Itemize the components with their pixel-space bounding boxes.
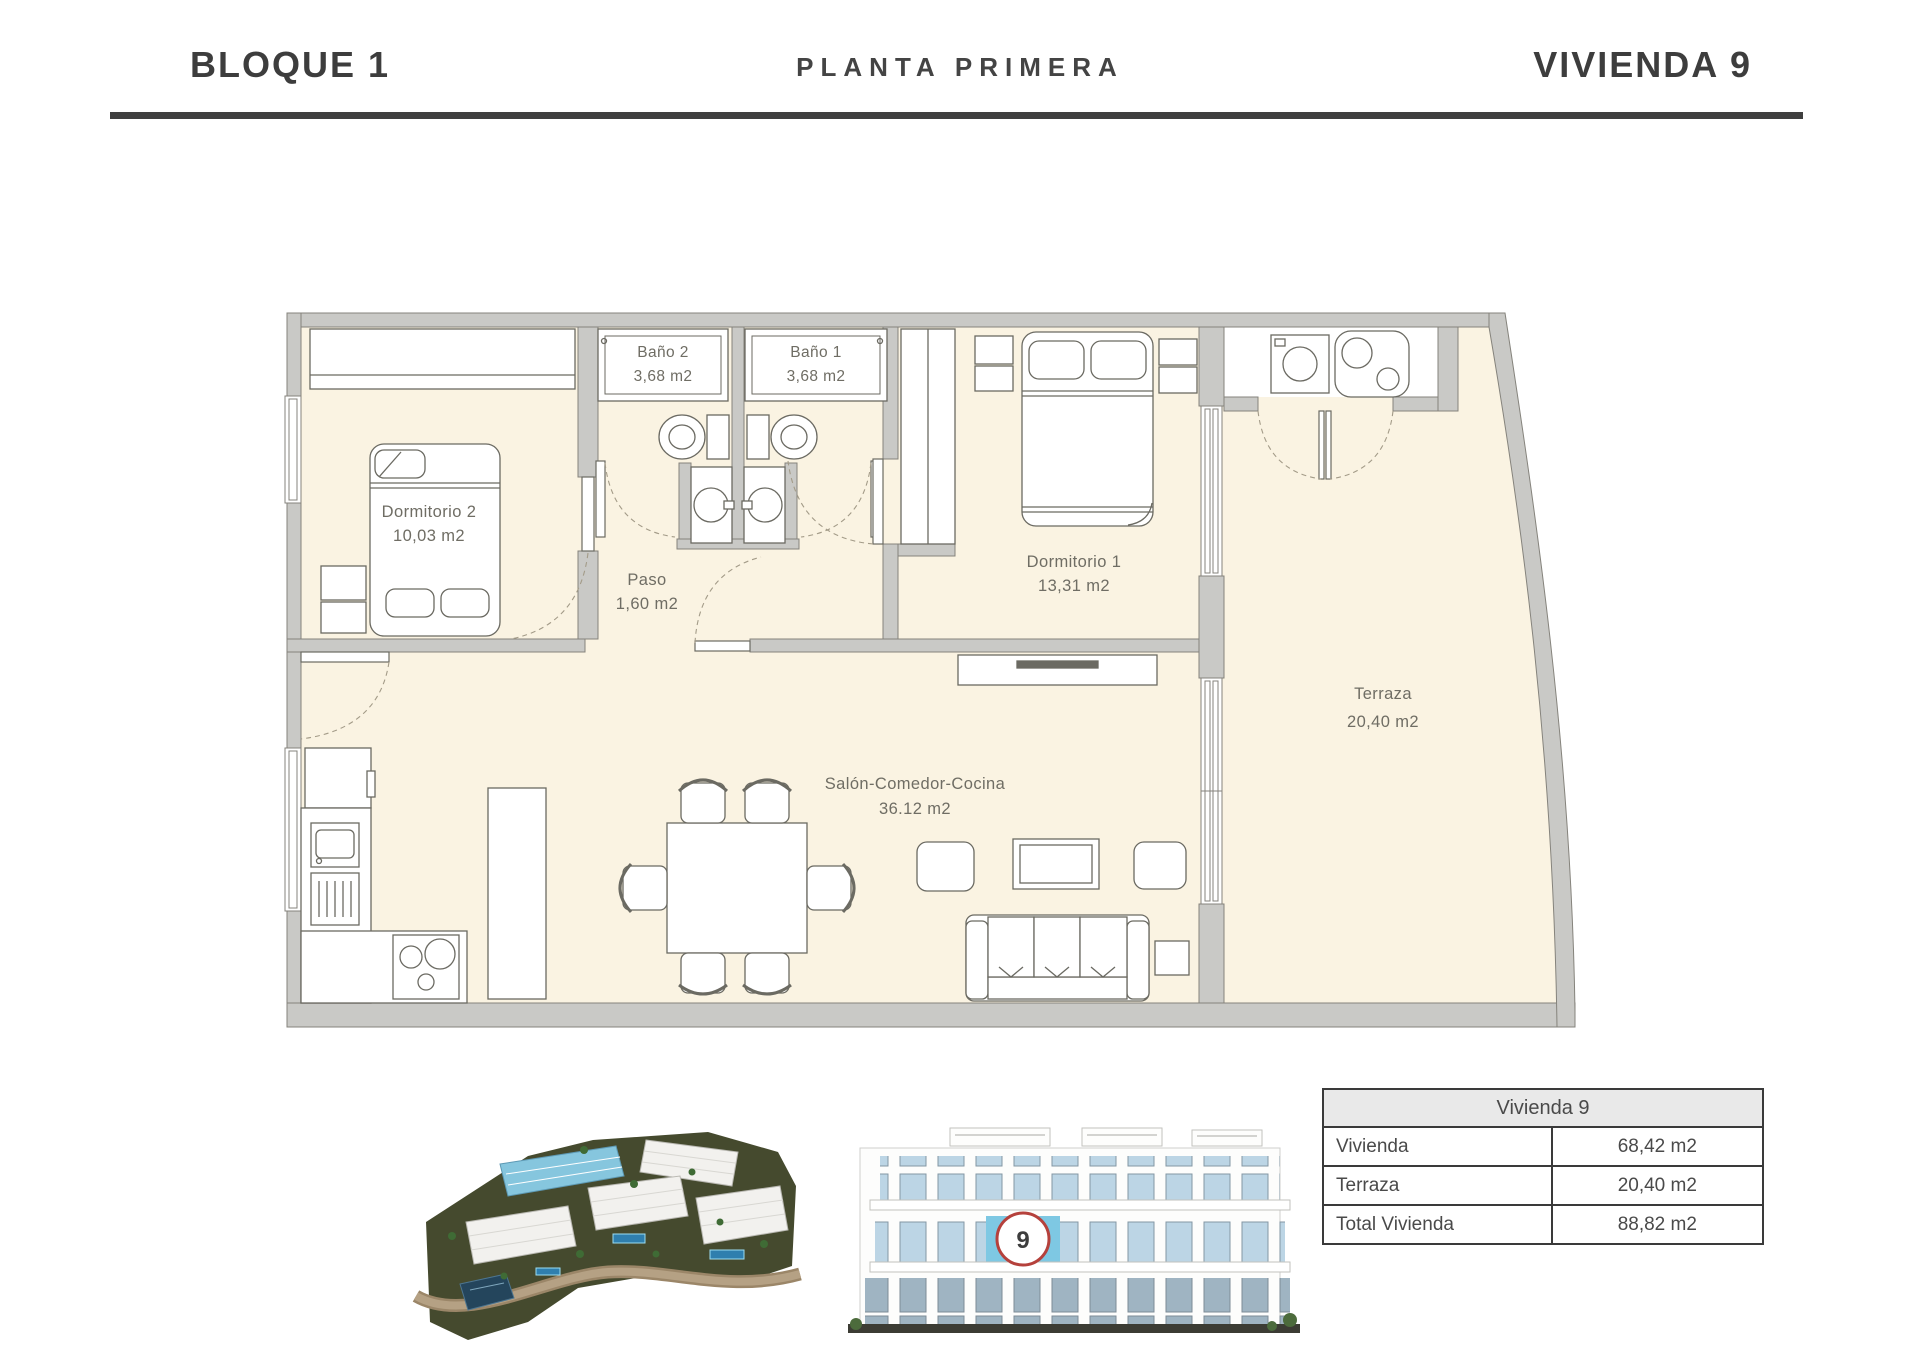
row-label: Vivienda <box>1324 1128 1553 1165</box>
svg-text:Salón-Comedor-Cocina: Salón-Comedor-Cocina <box>825 775 1006 793</box>
block-title: BLOQUE 1 <box>190 44 390 86</box>
table-row: Total Vivienda 88,82 m2 <box>1324 1206 1762 1243</box>
ground-line <box>848 1324 1300 1333</box>
svg-text:Baño 2: Baño 2 <box>637 344 689 361</box>
svg-text:1,60 m2: 1,60 m2 <box>616 595 678 613</box>
svg-text:36.12 m2: 36.12 m2 <box>879 800 951 818</box>
unit-title: VIVIENDA 9 <box>1533 44 1752 86</box>
svg-text:Paso: Paso <box>627 571 666 589</box>
row-label: Total Vivienda <box>1324 1206 1553 1243</box>
header-divider <box>110 112 1803 119</box>
summary-table: Vivienda 9 Vivienda 68,42 m2 Terraza 20,… <box>1322 1088 1764 1245</box>
table-row: Terraza 20,40 m2 <box>1324 1167 1762 1206</box>
row-value: 20,40 m2 <box>1553 1167 1762 1204</box>
svg-text:Baño 1: Baño 1 <box>790 344 842 361</box>
bedroom1-furniture <box>901 329 1197 544</box>
balcony-slab <box>870 1200 1290 1210</box>
roof-structures <box>950 1128 1262 1146</box>
svg-text:3,68 m2: 3,68 m2 <box>634 368 693 385</box>
row-value: 68,42 m2 <box>1553 1128 1762 1165</box>
utility-appliances <box>1271 331 1409 397</box>
row-label: Terraza <box>1324 1167 1553 1204</box>
unit-marker: 9 <box>997 1213 1049 1265</box>
svg-text:10,03 m2: 10,03 m2 <box>393 527 465 545</box>
svg-text:3,68 m2: 3,68 m2 <box>787 368 846 385</box>
svg-text:20,40 m2: 20,40 m2 <box>1347 713 1419 731</box>
svg-text:Dormitorio 1: Dormitorio 1 <box>1027 553 1122 571</box>
svg-text:Terraza: Terraza <box>1354 685 1412 703</box>
elevation-render: 9 <box>820 1122 1320 1340</box>
summary-table-title: Vivienda 9 <box>1324 1090 1762 1128</box>
floor-plan: Dormitorio 2 10,03 m2 Baño 2 3,68 m2 Bañ… <box>283 311 1593 1037</box>
floor-title: PLANTA PRIMERA <box>796 52 1124 83</box>
svg-text:9: 9 <box>1016 1227 1029 1254</box>
aerial-render <box>408 1126 808 1350</box>
svg-text:Dormitorio 2: Dormitorio 2 <box>382 503 477 521</box>
row-value: 88,82 m2 <box>1553 1206 1762 1243</box>
table-row: Vivienda 68,42 m2 <box>1324 1128 1762 1167</box>
svg-text:13,31 m2: 13,31 m2 <box>1038 577 1110 595</box>
